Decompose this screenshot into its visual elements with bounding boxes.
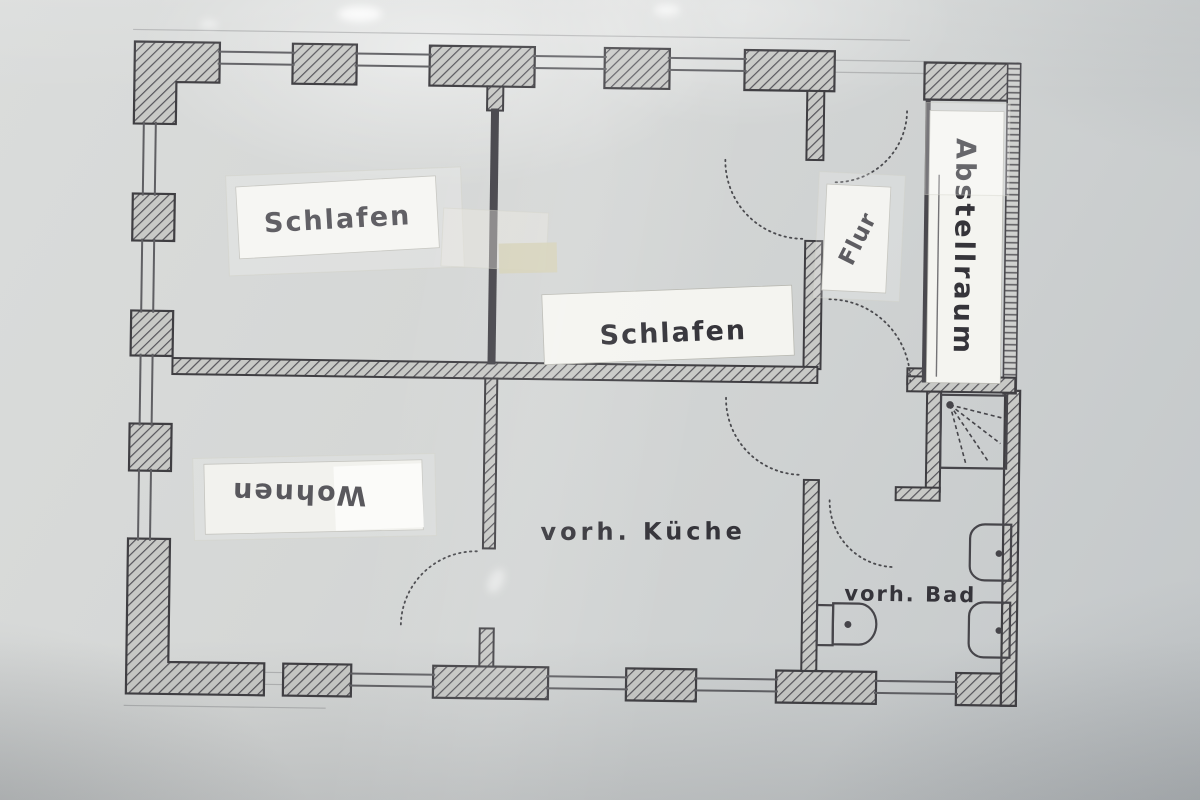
tape-patch: [813, 172, 905, 302]
wall-stub-bath-door: [896, 487, 940, 501]
wall-top: [292, 44, 357, 85]
room-label-text: Schlafen: [599, 315, 748, 352]
tape-patch-beige: [499, 242, 558, 273]
wall-top: [744, 50, 835, 91]
wall-corner-top-left: [134, 41, 220, 124]
toilet-icon: [817, 603, 877, 646]
door-arc-bath: [829, 500, 896, 567]
door-arc-hall: [828, 299, 911, 382]
wall-shower-left: [926, 392, 941, 492]
room-label-bath: vorh. Bad: [844, 581, 976, 607]
room-label-kitchen: vorh. Küche: [540, 517, 745, 546]
wall-bottom: [776, 670, 876, 703]
wall-left: [129, 423, 172, 471]
tape-patch: [925, 103, 1010, 196]
tape-patch: [193, 453, 437, 540]
wall-stub-living-kitchen-bottom: [479, 628, 494, 666]
wall-left: [131, 310, 174, 356]
wall-bedroom2-hall-upper: [806, 91, 824, 160]
wall-bottom: [626, 668, 696, 701]
photo-glare: [200, 20, 218, 28]
wall-bottom: [433, 666, 548, 700]
tape-patch: [226, 167, 465, 276]
wall-top: [429, 46, 535, 87]
wall-corner-bottom-left: [126, 538, 266, 695]
wall-living-kitchen: [483, 378, 497, 548]
wall-left: [132, 193, 175, 241]
shower-spray-icon: [940, 395, 1007, 469]
fixtures: [816, 393, 1013, 658]
photo-glare: [338, 6, 382, 22]
floor-plan-drawing: Schlafen Schlafen Flur Abstellraum Wohne…: [0, 0, 1200, 808]
room-label-bedroom-2: Schlafen: [541, 282, 795, 369]
wall-bottom: [283, 664, 351, 697]
door-arc-bedroom2: [724, 160, 803, 239]
photo-glare: [654, 4, 680, 16]
door-arc-entry: [834, 110, 907, 183]
wall-stub-bedroom-divider-top: [487, 86, 503, 110]
door-arc-living: [401, 550, 477, 626]
wall-storage-top: [924, 63, 1020, 101]
wall-top: [604, 48, 670, 89]
door-arc-kitchen: [725, 398, 802, 475]
floor-plan: Schlafen Schlafen Flur Abstellraum Wohne…: [0, 0, 1200, 808]
